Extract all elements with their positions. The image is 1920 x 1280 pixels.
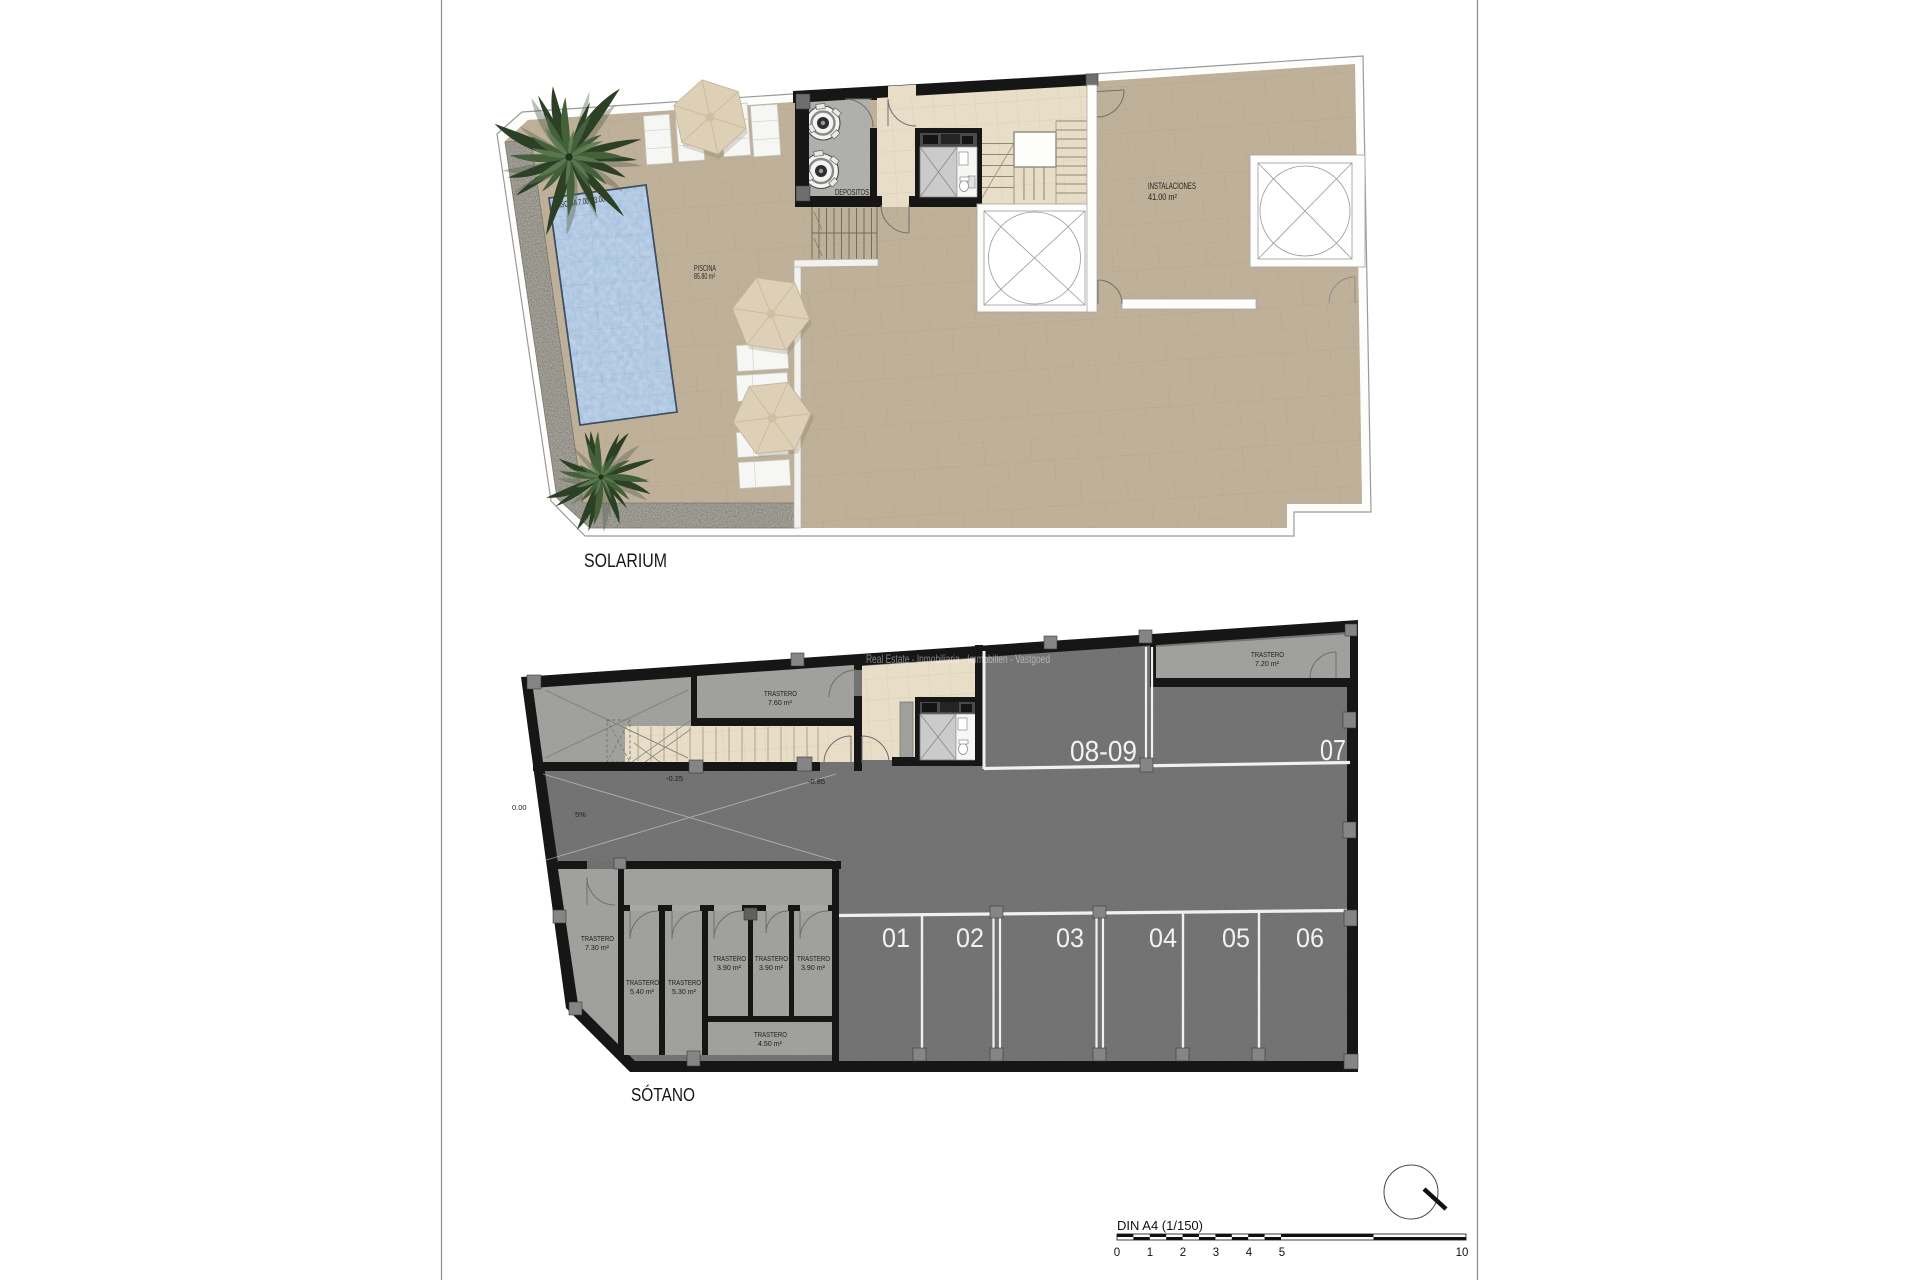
svg-text:TRASTERO: TRASTERO: [581, 934, 614, 943]
svg-text:SÓTANO: SÓTANO: [631, 1084, 695, 1105]
svg-text:3.90 m²: 3.90 m²: [759, 963, 783, 972]
svg-text:SOLARIUM: SOLARIUM: [584, 550, 667, 572]
svg-text:TRASTERO: TRASTERO: [668, 978, 701, 987]
svg-text:06: 06: [1296, 923, 1324, 953]
svg-text:-0.25: -0.25: [666, 774, 683, 783]
svg-text:TRASTERO: TRASTERO: [1251, 650, 1284, 659]
svg-text:TRASTERO: TRASTERO: [764, 689, 797, 698]
svg-text:4: 4: [1246, 1247, 1253, 1259]
svg-text:TRASTERO: TRASTERO: [754, 1030, 787, 1039]
svg-text:5: 5: [1279, 1247, 1285, 1259]
svg-text:7.30 m²: 7.30 m²: [585, 943, 609, 952]
svg-text:0: 0: [1114, 1247, 1120, 1259]
svg-text:TRASTERO: TRASTERO: [797, 954, 830, 963]
svg-text:08-09: 08-09: [1070, 736, 1137, 768]
svg-text:85.80 m²: 85.80 m²: [694, 272, 715, 281]
svg-text:10: 10: [1456, 1247, 1469, 1259]
svg-text:DIN A4 (1/150): DIN A4 (1/150): [1117, 1218, 1203, 1233]
svg-text:01: 01: [882, 923, 910, 953]
svg-text:3: 3: [1213, 1247, 1219, 1259]
svg-text:05: 05: [1222, 923, 1250, 953]
svg-text:7.60 m²: 7.60 m²: [768, 698, 792, 707]
svg-text:03: 03: [1056, 923, 1084, 953]
svg-text:1: 1: [1147, 1247, 1153, 1259]
svg-text:INSTALACIONES: INSTALACIONES: [1148, 181, 1196, 191]
svg-text:3.90 m²: 3.90 m²: [717, 963, 741, 972]
svg-text:-0.85: -0.85: [808, 777, 825, 786]
svg-text:0.00: 0.00: [512, 803, 527, 812]
svg-text:04: 04: [1149, 923, 1177, 953]
svg-text:TRASTERO: TRASTERO: [755, 954, 788, 963]
svg-text:7.20 m²: 7.20 m²: [1255, 659, 1279, 668]
svg-text:DEPOSITOS: DEPOSITOS: [835, 188, 869, 197]
svg-text:07: 07: [1320, 735, 1346, 767]
svg-text:5.30 m²: 5.30 m²: [672, 987, 696, 996]
svg-text:5%: 5%: [575, 810, 586, 819]
svg-text:4.50 m²: 4.50 m²: [758, 1039, 782, 1048]
svg-text:TRASTERO: TRASTERO: [713, 954, 746, 963]
svg-text:3.90 m²: 3.90 m²: [801, 963, 825, 972]
svg-text:Real Estate - Inmobiliaria - I: Real Estate - Inmobiliaria - Immobilien …: [866, 652, 1050, 666]
svg-text:TRASTERO: TRASTERO: [626, 978, 659, 987]
svg-text:41.00 m²: 41.00 m²: [1148, 192, 1177, 202]
svg-text:2: 2: [1180, 1247, 1186, 1259]
svg-text:5.40 m²: 5.40 m²: [630, 987, 654, 996]
svg-text:02: 02: [956, 923, 984, 953]
